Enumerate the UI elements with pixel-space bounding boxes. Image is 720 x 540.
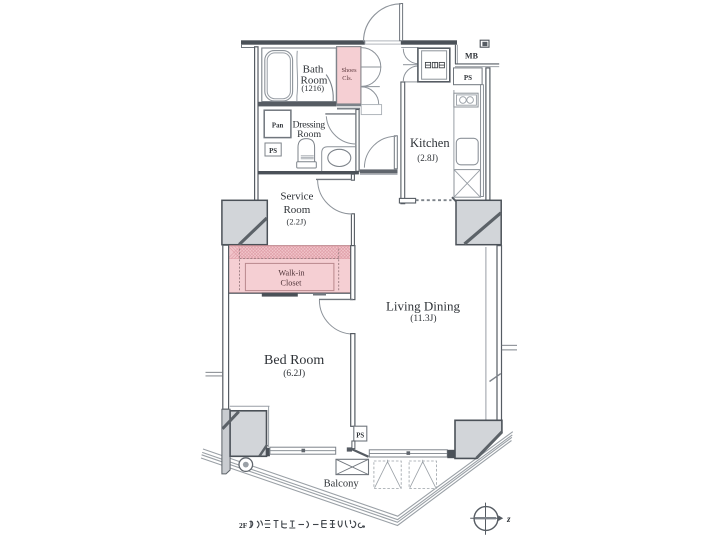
svg-text:Bed Room: Bed Room [264,353,324,368]
svg-text:(1216): (1216) [301,83,324,93]
svg-text:(6.2J): (6.2J) [283,368,305,379]
svg-text:Cls.: Cls. [342,75,352,82]
svg-text:Closet: Closet [281,278,303,287]
svg-text:MB: MB [465,52,479,61]
svg-text:Room: Room [297,129,321,140]
svg-text:(2.2J): (2.2J) [286,217,306,227]
svg-text:PS: PS [356,432,364,439]
svg-text:Room: Room [283,204,310,216]
svg-text:2F: 2F [239,521,248,530]
svg-text:PS: PS [269,148,277,155]
svg-text:Service: Service [280,191,313,203]
svg-text:Walk-in: Walk-in [278,269,304,278]
svg-text:(11.3J): (11.3J) [410,313,436,324]
svg-text:(2.8J): (2.8J) [417,153,438,163]
svg-text:Shoes: Shoes [341,67,357,74]
svg-text:z: z [506,514,511,524]
svg-text:Balcony: Balcony [324,478,360,489]
svg-text:PS: PS [464,74,472,82]
svg-text:Kitchen: Kitchen [410,136,450,150]
svg-text:Pan: Pan [272,123,284,130]
svg-text:Living Dining: Living Dining [386,298,461,313]
